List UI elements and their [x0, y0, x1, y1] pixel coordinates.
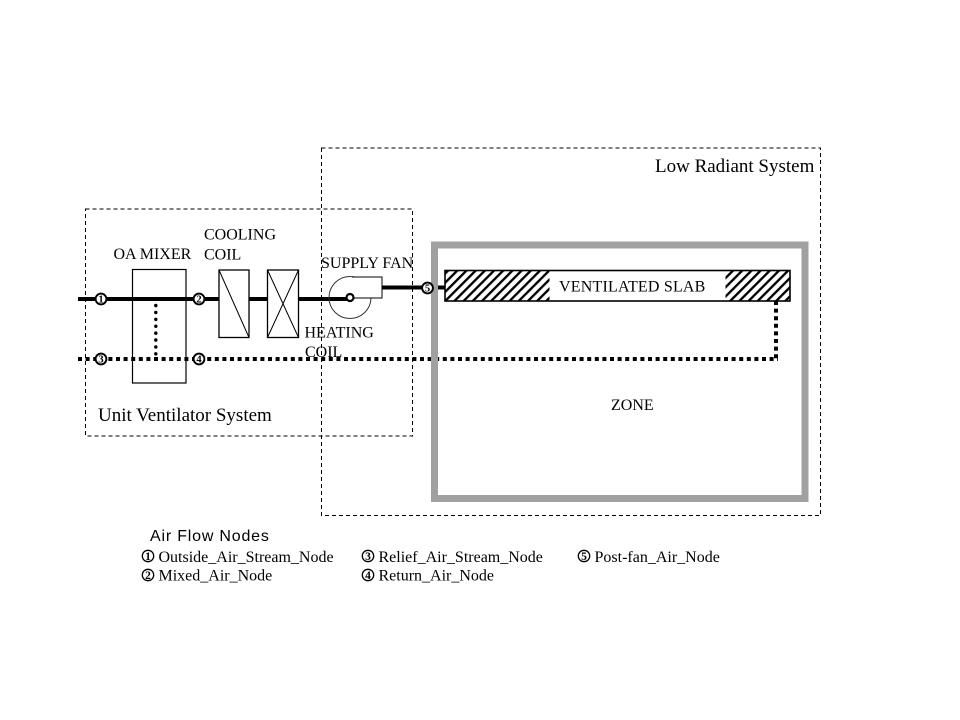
svg-text:2: 2	[145, 570, 151, 582]
svg-text:COOLING: COOLING	[204, 227, 276, 244]
svg-text:Return_Air_Node: Return_Air_Node	[379, 567, 495, 584]
svg-text:Mixed_Air_Node: Mixed_Air_Node	[159, 567, 273, 584]
svg-text:COIL: COIL	[204, 247, 241, 264]
svg-text:Unit Ventilator System: Unit Ventilator System	[98, 405, 272, 426]
svg-text:1: 1	[98, 295, 103, 306]
svg-text:HEATING: HEATING	[305, 325, 375, 342]
svg-text:OA MIXER: OA MIXER	[114, 246, 192, 263]
svg-text:4: 4	[365, 570, 371, 582]
svg-text:Outside_Air_Stream_Node: Outside_Air_Stream_Node	[159, 549, 334, 566]
svg-text:3: 3	[365, 551, 371, 563]
svg-text:SUPPLY FAN: SUPPLY FAN	[321, 255, 414, 272]
svg-text:3: 3	[98, 355, 103, 366]
svg-text:2: 2	[196, 295, 201, 306]
svg-text:COIL: COIL	[305, 344, 342, 361]
svg-text:Low Radiant System: Low Radiant System	[655, 156, 815, 177]
svg-text:4: 4	[196, 355, 202, 366]
svg-text:5: 5	[581, 551, 587, 563]
svg-text:5: 5	[425, 284, 430, 295]
svg-text:ZONE: ZONE	[611, 397, 654, 414]
svg-text:Air Flow Nodes: Air Flow Nodes	[150, 528, 270, 545]
svg-text:1: 1	[145, 551, 151, 563]
svg-text:Relief_Air_Stream_Node: Relief_Air_Stream_Node	[379, 549, 543, 566]
svg-text:VENTILATED SLAB: VENTILATED SLAB	[559, 279, 706, 296]
svg-text:Post-fan_Air_Node: Post-fan_Air_Node	[595, 549, 720, 566]
